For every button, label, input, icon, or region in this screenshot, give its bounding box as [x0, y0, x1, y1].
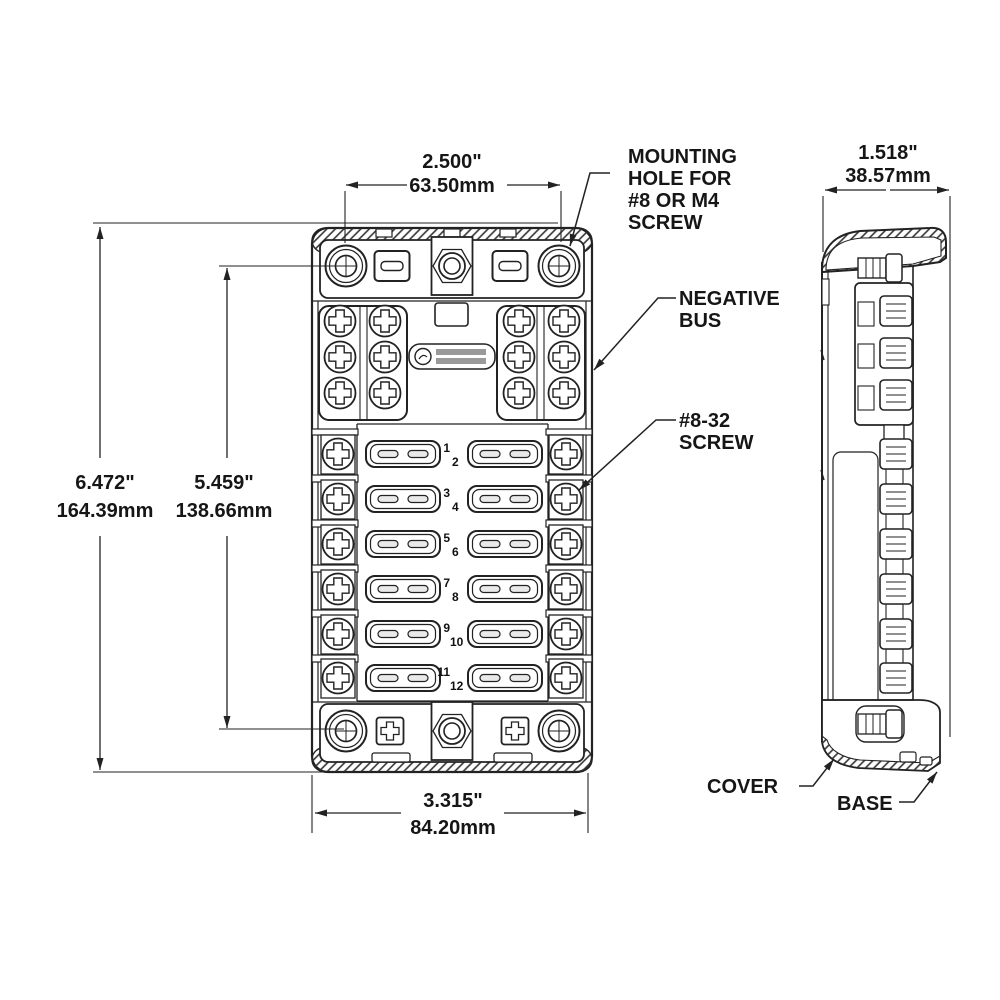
dim-base-width-mm: 84.20mm: [393, 817, 513, 840]
fuse-number-7: 7: [424, 577, 450, 589]
fuse-number-8: 8: [452, 591, 474, 603]
fuse-number-11: 11: [424, 666, 450, 678]
fuse-number-12: 12: [450, 680, 472, 692]
dim-spacing-in: 5.459": [160, 472, 288, 495]
mounting-hole-label: MOUNTING HOLE FOR #8 OR M4 SCREW: [628, 146, 737, 234]
fuse-number-5: 5: [424, 532, 450, 544]
screw-label: #8-32 SCREW: [679, 410, 753, 454]
blue-sea-logo-badge: [409, 344, 495, 369]
dim-top-width-in: 2.500": [392, 151, 512, 174]
leader-base: [899, 772, 937, 802]
dim-base-width-in: 3.315": [393, 790, 513, 813]
side-circuit-terminals: [880, 439, 912, 693]
side-bus-block: [855, 254, 913, 425]
fuse-number-4: 4: [452, 501, 474, 513]
leader-screw: [579, 420, 676, 490]
leader-negative-bus: [594, 298, 676, 370]
dim-side-depth-in: 1.518": [828, 142, 948, 165]
base-label: BASE: [837, 793, 893, 815]
negative-bus-left: [319, 306, 407, 421]
dim-top-width-mm: 63.50mm: [392, 175, 512, 198]
negative-bus-label: NEGATIVE BUS: [679, 288, 780, 332]
side-base: [822, 700, 940, 771]
side-view: [821, 228, 946, 771]
fuse-number-1: 1: [424, 442, 450, 454]
dim-side-depth-mm: 38.57mm: [828, 165, 948, 188]
fuse-number-9: 9: [424, 622, 450, 634]
cover-label: COVER: [707, 776, 778, 798]
fuse-number-10: 10: [450, 636, 472, 648]
front-bottom-terminal-strip: [320, 702, 584, 762]
drawing-canvas: 2.500" 63.50mm 1.518" 38.57mm 6.472" 164…: [0, 0, 1000, 1000]
dim-height-in: 6.472": [50, 472, 160, 495]
cover-window: [435, 303, 468, 326]
fuse-number-3: 3: [424, 487, 450, 499]
dim-spacing-mm: 138.66mm: [160, 500, 288, 523]
negative-bus-right: [497, 306, 585, 421]
cover-latch-slot: [822, 279, 829, 305]
dim-height-mm: 164.39mm: [50, 500, 160, 523]
fuse-number-6: 6: [452, 546, 474, 558]
fuse-number-2: 2: [452, 456, 474, 468]
front-top-terminal-strip: [320, 237, 584, 298]
cover-side-recess: [833, 452, 878, 738]
leader-cover: [799, 759, 834, 786]
